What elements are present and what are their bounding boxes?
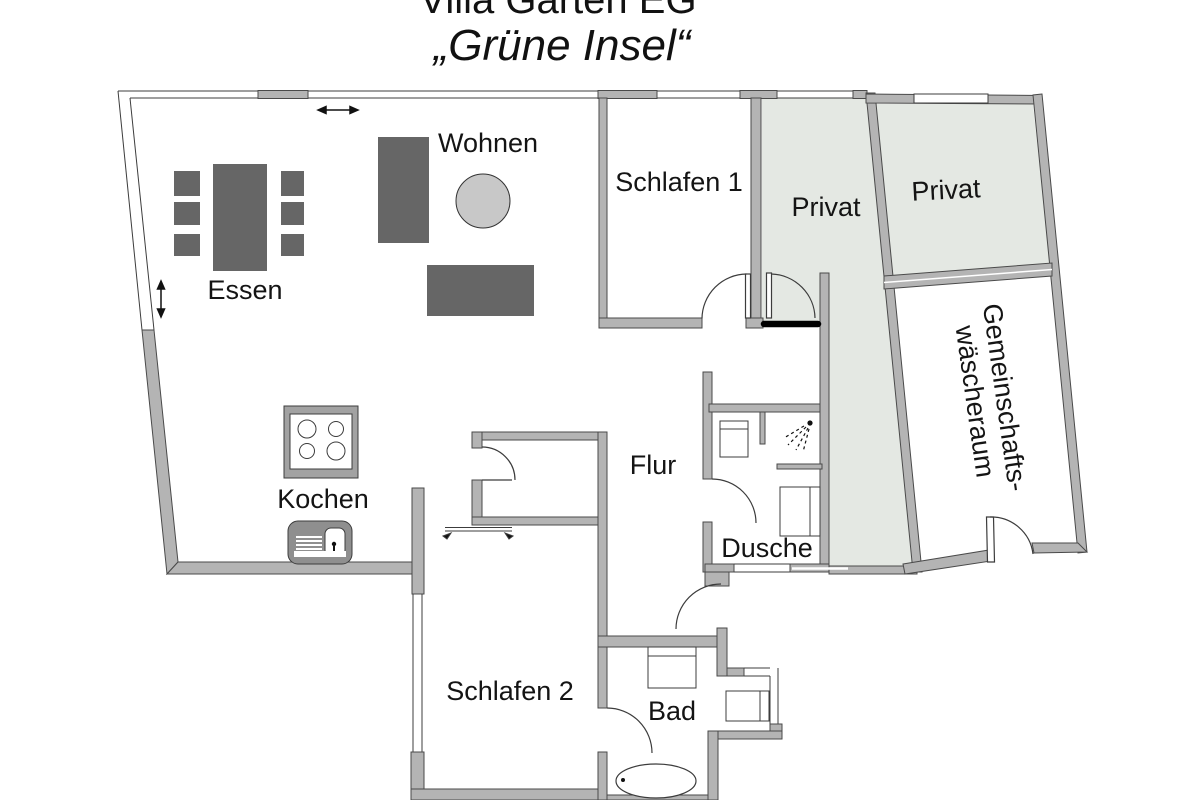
svg-text:Privat: Privat [911,173,982,207]
svg-text:Wohnen: Wohnen [438,128,538,158]
svg-text:Schlafen 1: Schlafen 1 [615,167,743,197]
svg-text:Kochen: Kochen [277,484,369,514]
svg-text:Essen: Essen [207,275,282,305]
svg-text:Bad: Bad [648,696,696,726]
svg-text:„Grüne Insel“: „Grüne Insel“ [432,21,693,70]
svg-text:Privat: Privat [791,192,861,222]
svg-text:Schlafen 2: Schlafen 2 [446,676,574,706]
svg-text:Villa Garten EG: Villa Garten EG [419,0,696,22]
svg-text:Flur: Flur [630,450,677,480]
svg-text:Dusche: Dusche [721,533,813,563]
